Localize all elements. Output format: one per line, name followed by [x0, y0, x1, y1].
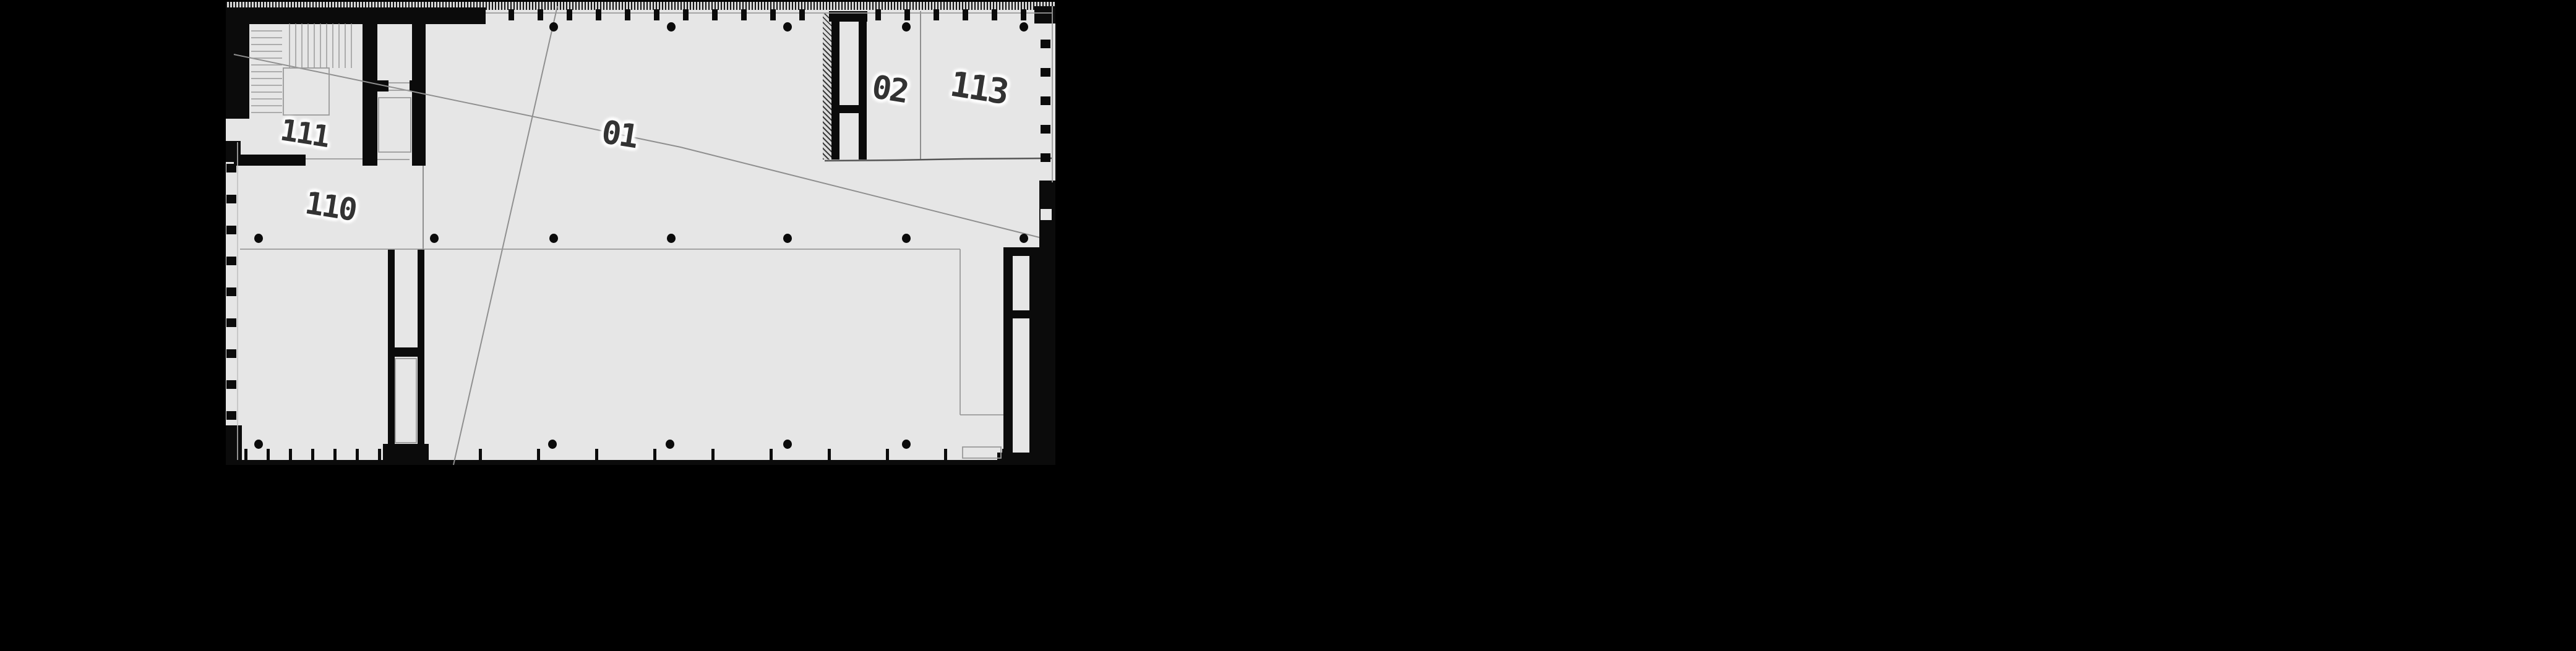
- mullion-tick: [904, 9, 910, 20]
- mullion-tick: [799, 9, 805, 20]
- column-dot: [902, 234, 911, 243]
- mullion-tick: [356, 449, 359, 460]
- mullion-tick: [934, 9, 939, 20]
- mullion-tick: [226, 411, 236, 420]
- column-dot: [783, 234, 792, 243]
- mullion-tick: [963, 9, 968, 20]
- mullion-tick: [595, 449, 598, 460]
- mullion-tick: [311, 449, 314, 460]
- column-dot: [666, 440, 674, 449]
- mullion-tick: [226, 287, 236, 296]
- column-dot: [783, 440, 792, 449]
- mullion-tick: [289, 449, 292, 460]
- room-label-111: 111: [278, 113, 331, 154]
- plan-linework: [0, 0, 2576, 651]
- mullion-tick: [625, 9, 630, 20]
- mullion-tick: [333, 449, 337, 460]
- mullion-tick: [944, 449, 947, 460]
- column-dot: [902, 22, 911, 32]
- mullion-tick: [653, 449, 656, 460]
- column-dot: [902, 440, 911, 449]
- mullion-tick: [711, 449, 715, 460]
- mullion-tick: [244, 449, 247, 460]
- mullion-tick: [1041, 96, 1050, 105]
- column-dot: [549, 22, 558, 32]
- column-dot: [783, 22, 792, 32]
- mullion-tick: [226, 442, 236, 451]
- mullion-tick: [1041, 125, 1050, 134]
- column-dot: [254, 234, 263, 243]
- mullion-tick: [683, 9, 689, 20]
- elevator-car-upper: [379, 98, 411, 152]
- mullion-tick: [267, 449, 270, 460]
- mullion-tick: [226, 164, 236, 172]
- mullion-tick: [596, 9, 601, 20]
- mullion-tick: [538, 9, 543, 20]
- mullion-tick: [226, 195, 236, 203]
- mullion-tick: [226, 257, 236, 265]
- column-dot: [1020, 234, 1028, 243]
- mullion-tick: [1041, 40, 1050, 48]
- mullion-tick: [875, 9, 881, 20]
- stair-landing: [283, 68, 329, 115]
- mullion-tick: [654, 9, 659, 20]
- elevator-car-lower: [395, 359, 416, 443]
- mullion-tick: [537, 449, 540, 460]
- mullion-tick: [992, 9, 997, 20]
- mullion-tick: [421, 449, 424, 460]
- column-dot: [430, 234, 439, 243]
- column-dot: [667, 234, 676, 243]
- column-dot: [254, 440, 263, 449]
- mullion-tick: [567, 9, 572, 20]
- wall-rooms-02-113-south: [825, 158, 1052, 161]
- mullion-tick: [741, 9, 747, 20]
- column-dot: [548, 440, 557, 449]
- mullion-tick: [770, 449, 773, 460]
- zone-notch: [963, 447, 1001, 458]
- mullion-tick: [226, 318, 236, 327]
- floor-plan-canvas: 111 110 01 02 113: [0, 0, 2576, 651]
- mullion-tick: [378, 449, 381, 460]
- mullion-tick: [712, 9, 718, 20]
- mullion-tick: [1021, 9, 1026, 20]
- stair-treads-upper: [290, 23, 351, 68]
- mullion-tick: [509, 9, 514, 20]
- leader-line-steep: [453, 6, 557, 465]
- mullion-tick: [886, 449, 889, 460]
- room-label-110: 110: [303, 185, 358, 228]
- space-label-01: 01: [599, 114, 639, 156]
- mullion-tick: [226, 226, 236, 234]
- mullion-tick: [226, 349, 236, 358]
- core-label-02: 02: [869, 69, 909, 111]
- mullion-tick: [828, 449, 831, 460]
- mullion-tick: [226, 380, 236, 389]
- stair-treads-left: [251, 31, 282, 113]
- mullion-tick: [770, 9, 776, 20]
- mullion-tick: [1041, 68, 1050, 77]
- column-dot: [1020, 22, 1028, 32]
- column-dot: [667, 22, 676, 32]
- mullion-tick: [1002, 449, 1005, 460]
- mullion-tick: [479, 449, 482, 460]
- column-dot: [549, 234, 558, 243]
- mullion-tick: [1041, 153, 1050, 162]
